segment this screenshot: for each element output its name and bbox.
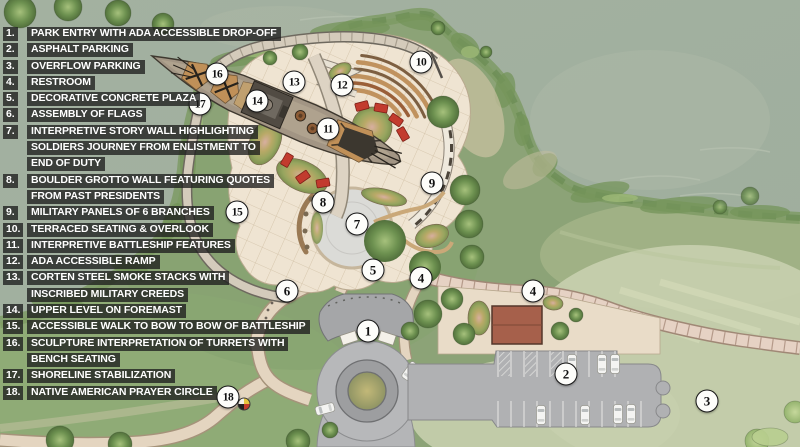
legend-text: PARK ENTRY WITH ADA ACCESSIBLE DROP-OFF — [27, 27, 281, 41]
legend-text: TERRACED SEATING & OVERLOOK — [27, 223, 213, 237]
legend-number: 16. — [3, 337, 23, 351]
legend-item-6: 6.ASSEMBLY OF FLAGS — [3, 108, 310, 124]
legend-item-4: 4.RESTROOM — [3, 76, 310, 92]
legend-text: SCULPTURE INTERPRETATION OF TURRETS WITH — [27, 337, 288, 351]
legend-number: 8. — [3, 174, 18, 188]
legend-item-10: 10.TERRACED SEATING & OVERLOOK — [3, 223, 310, 239]
legend-text: CORTEN STEEL SMOKE STACKS WITH — [27, 271, 229, 285]
plan-marker-1: 1 — [357, 320, 380, 343]
legend-item-7: 7.INTERPRETIVE STORY WALL HIGHLIGHTING — [3, 125, 310, 141]
legend-number: 18. — [3, 386, 23, 400]
legend-item-8-cont: FROM PAST PRESIDENTS — [3, 190, 310, 206]
legend-item-2: 2.ASPHALT PARKING — [3, 43, 310, 59]
legend-item-1: 1.PARK ENTRY WITH ADA ACCESSIBLE DROP-OF… — [3, 27, 310, 43]
plan-marker-4: 4 — [522, 280, 545, 303]
legend-text: OVERFLOW PARKING — [27, 60, 145, 74]
legend-text: ASSEMBLY OF FLAGS — [27, 108, 146, 122]
plan-marker-9: 9 — [421, 172, 444, 195]
legend: 1.PARK ENTRY WITH ADA ACCESSIBLE DROP-OF… — [3, 27, 310, 402]
legend-number: 11. — [3, 239, 23, 253]
legend-text: NATIVE AMERICAN PRAYER CIRCLE — [27, 386, 217, 400]
legend-text: SHORELINE STABILIZATION — [27, 369, 175, 383]
legend-text: FROM PAST PRESIDENTS — [27, 190, 164, 204]
legend-item-15: 15.ACCESSIBLE WALK TO BOW TO BOW OF BATT… — [3, 320, 310, 336]
legend-item-14: 14.UPPER LEVEL ON FOREMAST — [3, 304, 310, 320]
legend-text: ACCESSIBLE WALK TO BOW TO BOW OF BATTLES… — [27, 320, 310, 334]
legend-number: 9. — [3, 206, 18, 220]
ada-stalls — [499, 352, 562, 376]
legend-item-3: 3.OVERFLOW PARKING — [3, 60, 310, 76]
legend-text: UPPER LEVEL ON FOREMAST — [27, 304, 186, 318]
restroom-building — [492, 306, 542, 344]
plan-marker-2: 2 — [555, 363, 578, 386]
legend-number: 2. — [3, 43, 18, 57]
legend-item-9: 9.MILITARY PANELS OF 6 BRANCHES — [3, 206, 310, 222]
legend-text: RESTROOM — [27, 76, 95, 90]
legend-item-18: 18.NATIVE AMERICAN PRAYER CIRCLE — [3, 386, 310, 402]
plan-marker-11: 11 — [317, 118, 340, 141]
legend-number: 3. — [3, 60, 18, 74]
legend-item-8: 8.BOULDER GROTTO WALL FEATURING QUOTES — [3, 174, 310, 190]
legend-item-16: 16.SCULPTURE INTERPRETATION OF TURRETS W… — [3, 337, 310, 353]
legend-text: INTERPRETIVE STORY WALL HIGHLIGHTING — [27, 125, 258, 139]
legend-item-16-cont: BENCH SEATING — [3, 353, 310, 369]
legend-text: ASPHALT PARKING — [27, 43, 133, 57]
legend-item-17: 17.SHORELINE STABILIZATION — [3, 369, 310, 385]
plan-marker-10: 10 — [410, 51, 433, 74]
legend-number: 7. — [3, 125, 18, 139]
plan-marker-3: 3 — [696, 390, 719, 413]
legend-text: ADA ACCESSIBLE RAMP — [27, 255, 160, 269]
legend-text: INSCRIBED MILITARY CREEDS — [27, 288, 188, 302]
legend-number: 5. — [3, 92, 18, 106]
legend-number: 10. — [3, 223, 23, 237]
legend-number: 12. — [3, 255, 23, 269]
legend-number: 1. — [3, 27, 18, 41]
legend-number: 4. — [3, 76, 18, 90]
legend-text: END OF DUTY — [27, 157, 105, 171]
legend-text: BOULDER GROTTO WALL FEATURING QUOTES — [27, 174, 274, 188]
legend-text: BENCH SEATING — [27, 353, 120, 367]
roundabout-island — [348, 372, 386, 410]
legend-item-7-cont: END OF DUTY — [3, 157, 310, 173]
site-plan-screenshot: 1.PARK ENTRY WITH ADA ACCESSIBLE DROP-OF… — [0, 0, 800, 447]
legend-item-5: 5.DECORATIVE CONCRETE PLAZA — [3, 92, 310, 108]
planted-mound — [364, 220, 406, 262]
legend-item-13-cont: INSCRIBED MILITARY CREEDS — [3, 288, 310, 304]
legend-item-12: 12.ADA ACCESSIBLE RAMP — [3, 255, 310, 271]
plan-marker-8: 8 — [312, 191, 335, 214]
plan-marker-5: 5 — [362, 259, 385, 282]
legend-text: SOLDIERS JOURNEY FROM ENLISTMENT TO — [27, 141, 260, 155]
legend-item-13: 13.CORTEN STEEL SMOKE STACKS WITH — [3, 271, 310, 287]
legend-text: INTERPRETIVE BATTLESHIP FEATURES — [27, 239, 235, 253]
legend-item-11: 11.INTERPRETIVE BATTLESHIP FEATURES — [3, 239, 310, 255]
plan-marker-12: 12 — [331, 74, 354, 97]
legend-text: MILITARY PANELS OF 6 BRANCHES — [27, 206, 214, 220]
legend-number: 14. — [3, 304, 23, 318]
legend-number: 15. — [3, 320, 23, 334]
legend-number: 17. — [3, 369, 23, 383]
legend-number: 13. — [3, 271, 23, 285]
plan-marker-4: 4 — [410, 267, 433, 290]
plan-marker-7: 7 — [346, 213, 369, 236]
legend-text: DECORATIVE CONCRETE PLAZA — [27, 92, 200, 106]
legend-item-7-cont: SOLDIERS JOURNEY FROM ENLISTMENT TO — [3, 141, 310, 157]
legend-number: 6. — [3, 108, 18, 122]
